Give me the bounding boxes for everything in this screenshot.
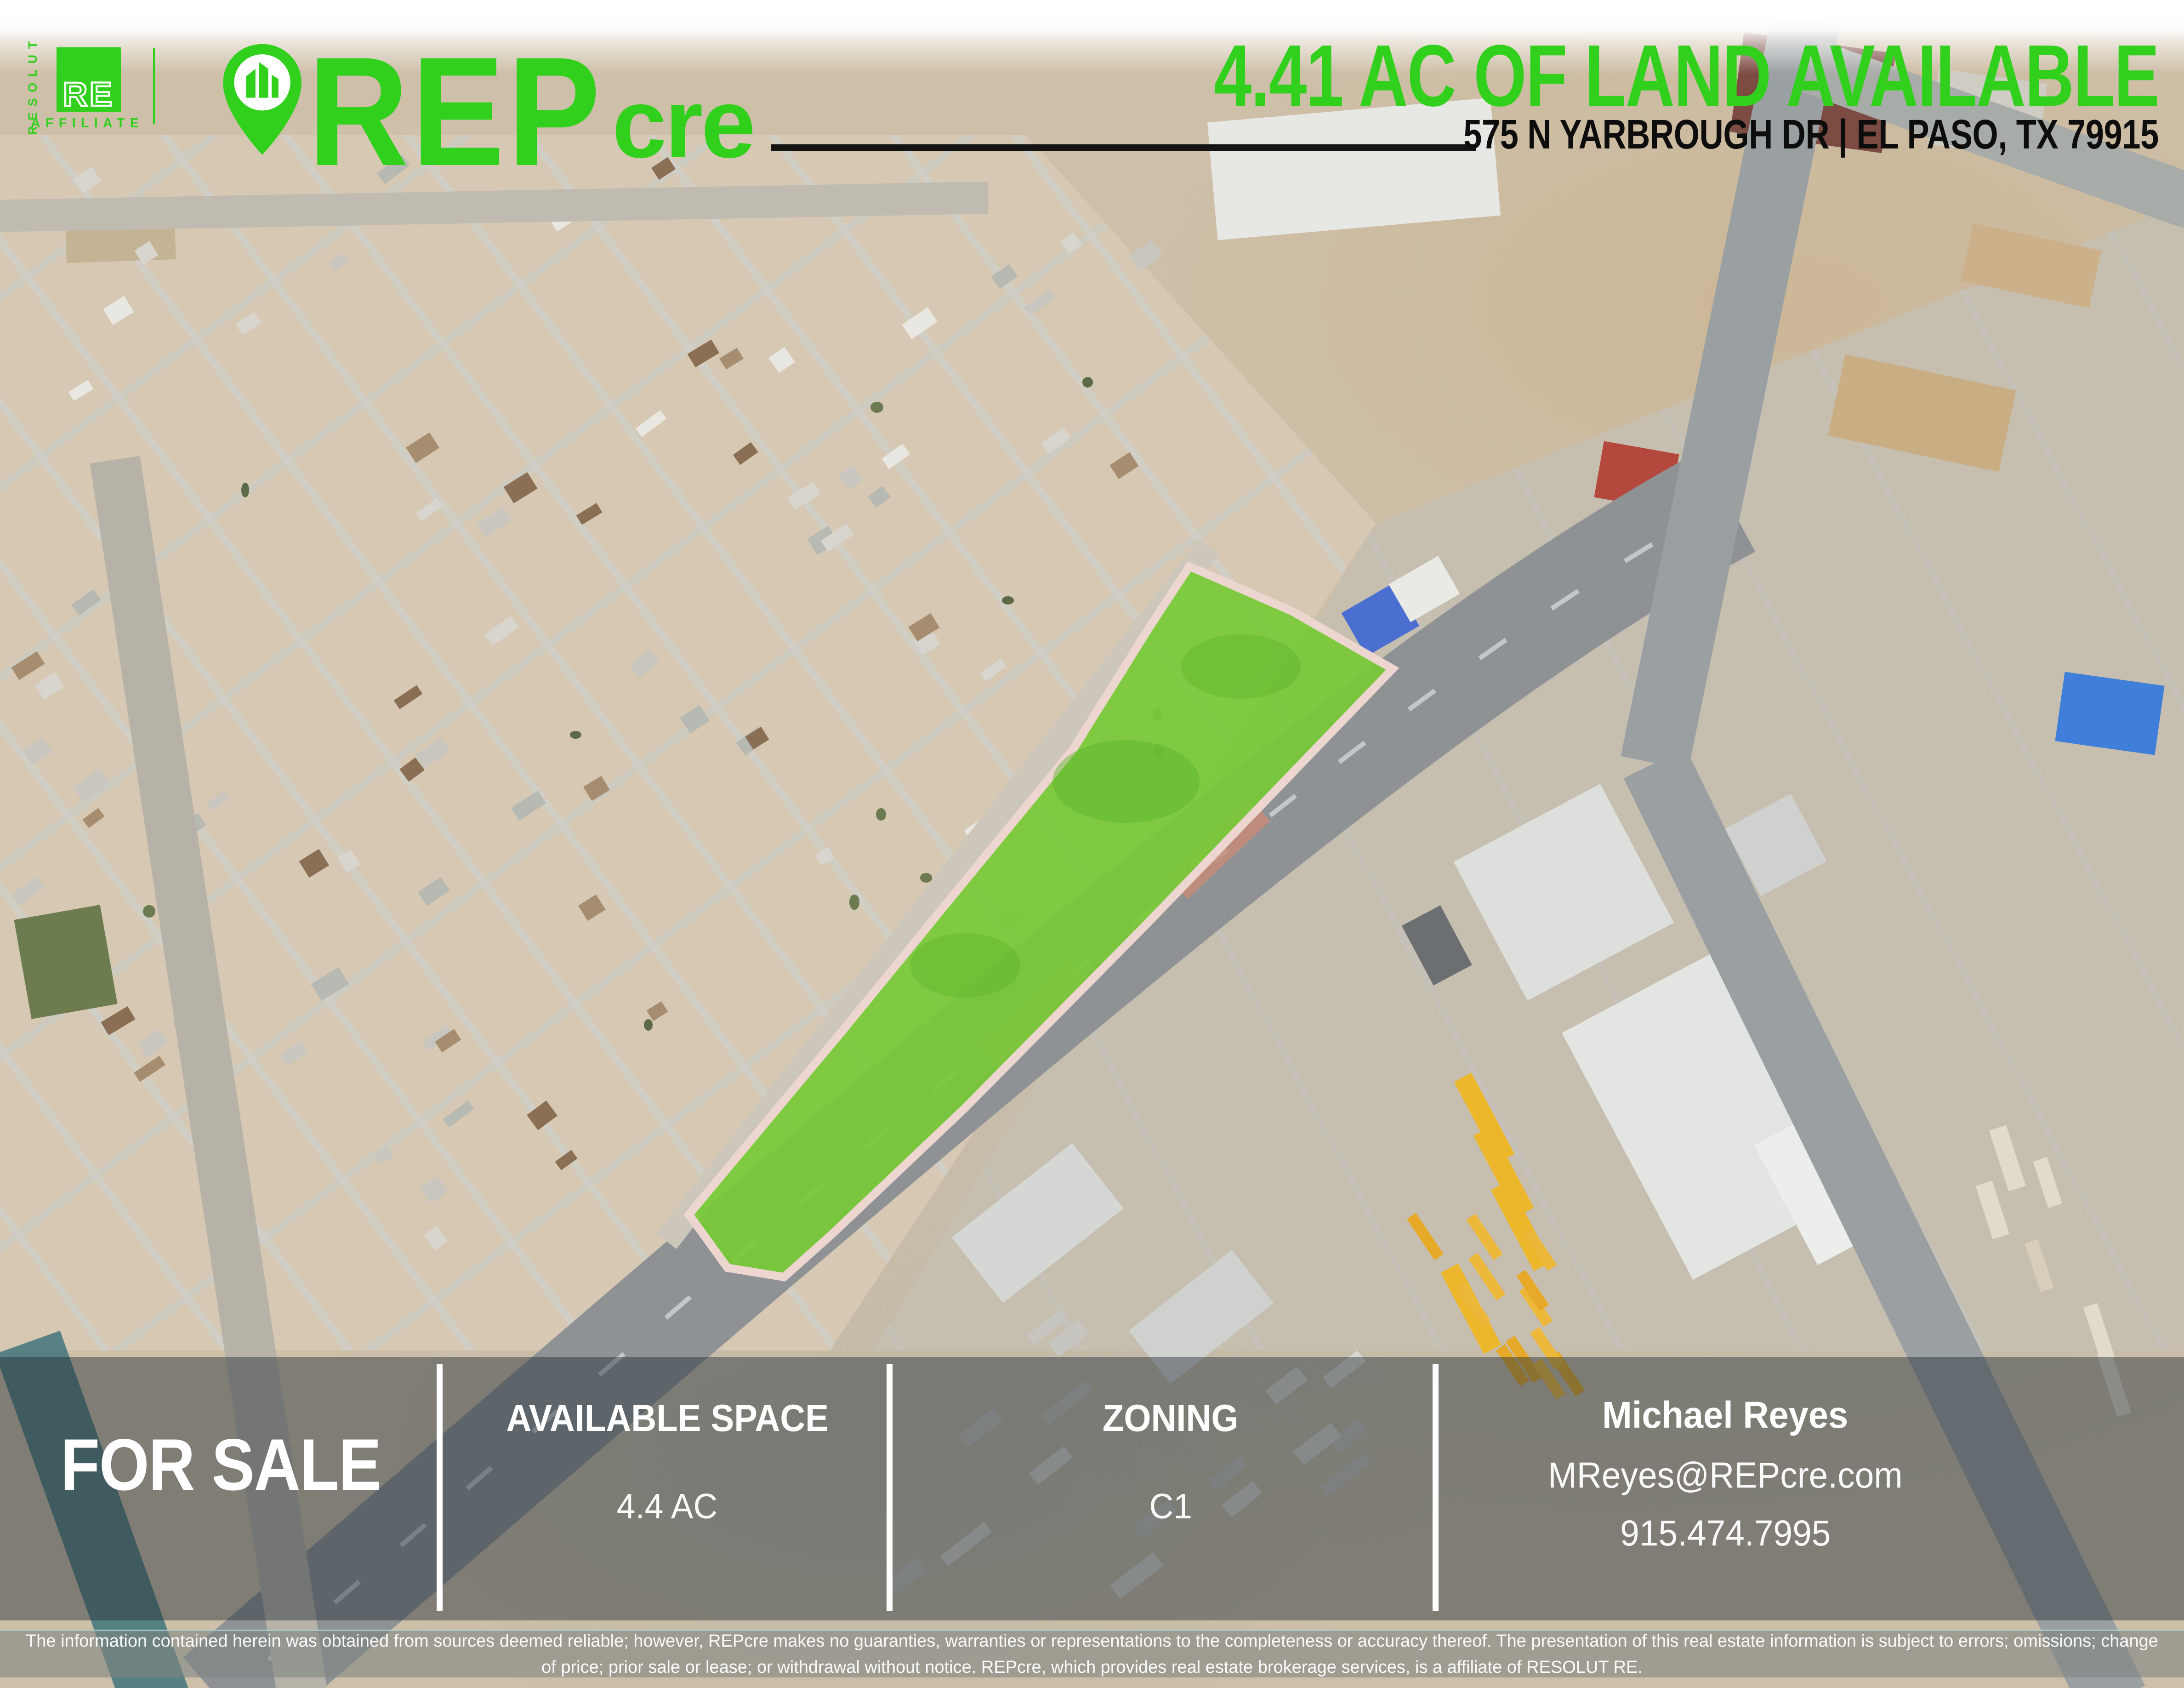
headline-text: 4.41 AC OF LAND AVAILABLE — [1214, 32, 2159, 120]
band-divider — [437, 1364, 442, 1611]
band-divider — [1433, 1364, 1438, 1611]
for-sale-text: FOR SALE — [60, 1428, 381, 1501]
affiliate-label: AFFILIATE — [20, 116, 155, 131]
band-divider — [887, 1364, 892, 1611]
for-sale-label: FOR SALE — [31, 1428, 411, 1501]
contact-block: Michael Reyes MReyes@REPcre.com 915.474.… — [1441, 1357, 2009, 1620]
property-address: 575 N YARBROUGH DR | EL PASO, TX 79915 — [1290, 114, 2159, 155]
property-address-text: 575 N YARBROUGH DR | EL PASO, TX 79915 — [1464, 114, 2159, 155]
contact-phone: 915.474.7995 — [1441, 1515, 2009, 1551]
zoning-section: ZONING C1 — [898, 1357, 1444, 1620]
contact-email: MReyes@REPcre.com — [1441, 1457, 2009, 1494]
repcre-wordmark: REPcre — [308, 38, 754, 188]
re-outline-text: RE — [63, 76, 114, 112]
north-street — [0, 198, 988, 216]
location-pin-buildings-icon — [220, 42, 305, 157]
repcre-wordmark-main: REP — [308, 38, 603, 186]
info-band: FOR SALE AVAILABLE SPACE 4.4 AC ZONING C… — [0, 1357, 2184, 1620]
resolut-re-logo: RE — [57, 47, 121, 112]
disclaimer-strip: The information contained herein was obt… — [0, 1630, 2184, 1677]
available-space-section: AVAILABLE SPACE 4.4 AC — [445, 1357, 889, 1620]
parcel-vegetation — [1181, 634, 1301, 699]
resolut-vertical-label: RESOLUT — [9, 46, 57, 125]
zoning-value: C1 — [898, 1489, 1444, 1524]
repcre-wordmark-sub: cre — [612, 67, 754, 180]
available-space-label: AVAILABLE SPACE — [445, 1399, 889, 1437]
parcel-vegetation — [910, 933, 1020, 998]
flyer-page: RESOLUT RE AFFILIATE REPcre 4.41 AC OF L… — [0, 0, 2184, 1688]
headline: 4.41 AC OF LAND AVAILABLE — [947, 32, 2159, 120]
available-space-value: 4.4 AC — [445, 1489, 889, 1524]
contact-name: Michael Reyes — [1441, 1397, 2009, 1434]
logo-divider — [153, 48, 155, 124]
disclaimer-text: The information contained herein was obt… — [0, 1628, 2184, 1681]
parcel-vegetation — [1052, 740, 1200, 823]
zoning-label: ZONING — [898, 1399, 1444, 1437]
